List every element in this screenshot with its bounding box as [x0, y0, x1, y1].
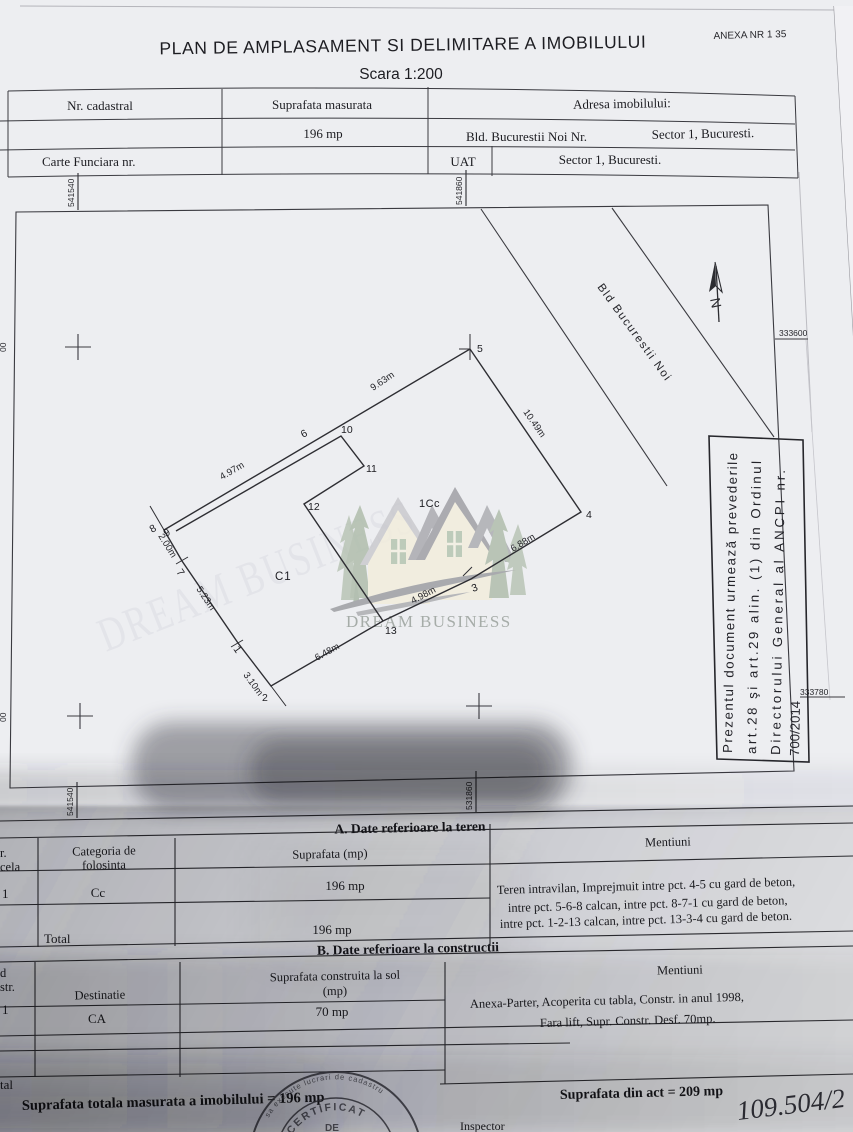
svg-text:Nr. cadastral: Nr. cadastral — [67, 98, 133, 113]
svg-text:C1: C1 — [275, 571, 292, 583]
svg-text:Sector 1, Bucuresti.: Sector 1, Bucuresti. — [559, 152, 662, 167]
svg-text:10: 10 — [341, 424, 353, 436]
svg-text:ANEXA NR 1 35: ANEXA NR 1 35 — [713, 29, 787, 42]
svg-text:5: 5 — [477, 343, 483, 355]
svg-text:12: 12 — [308, 501, 320, 513]
svg-text:Suprafata masurata: Suprafata masurata — [272, 97, 372, 112]
svg-text:700/2014: 700/2014 — [787, 701, 803, 756]
svg-text:2: 2 — [262, 692, 268, 704]
svg-text:333780: 333780 — [800, 687, 829, 697]
svg-text:4: 4 — [586, 509, 592, 521]
svg-text:00: 00 — [0, 712, 8, 722]
svg-text:541860: 541860 — [454, 176, 464, 205]
svg-text:Scara 1:200: Scara 1:200 — [359, 66, 443, 83]
svg-text:Bld. Bucurestii Noi Nr.: Bld. Bucurestii Noi Nr. — [466, 129, 587, 144]
svg-text:UAT: UAT — [450, 154, 475, 169]
svg-text:1Cc: 1Cc — [419, 498, 440, 510]
svg-text:333600: 333600 — [779, 328, 808, 338]
svg-text:11: 11 — [366, 463, 377, 475]
svg-text:541540: 541540 — [66, 178, 76, 207]
svg-text:Sector 1, Bucuresti.: Sector 1, Bucuresti. — [652, 125, 755, 142]
svg-text:196 mp: 196 mp — [303, 126, 342, 141]
svg-text:13: 13 — [385, 625, 397, 637]
svg-text:Adresa imobilului:: Adresa imobilului: — [573, 95, 671, 112]
svg-text:00: 00 — [0, 342, 8, 352]
svg-text:Carte Funciara nr.: Carte Funciara nr. — [42, 154, 136, 169]
